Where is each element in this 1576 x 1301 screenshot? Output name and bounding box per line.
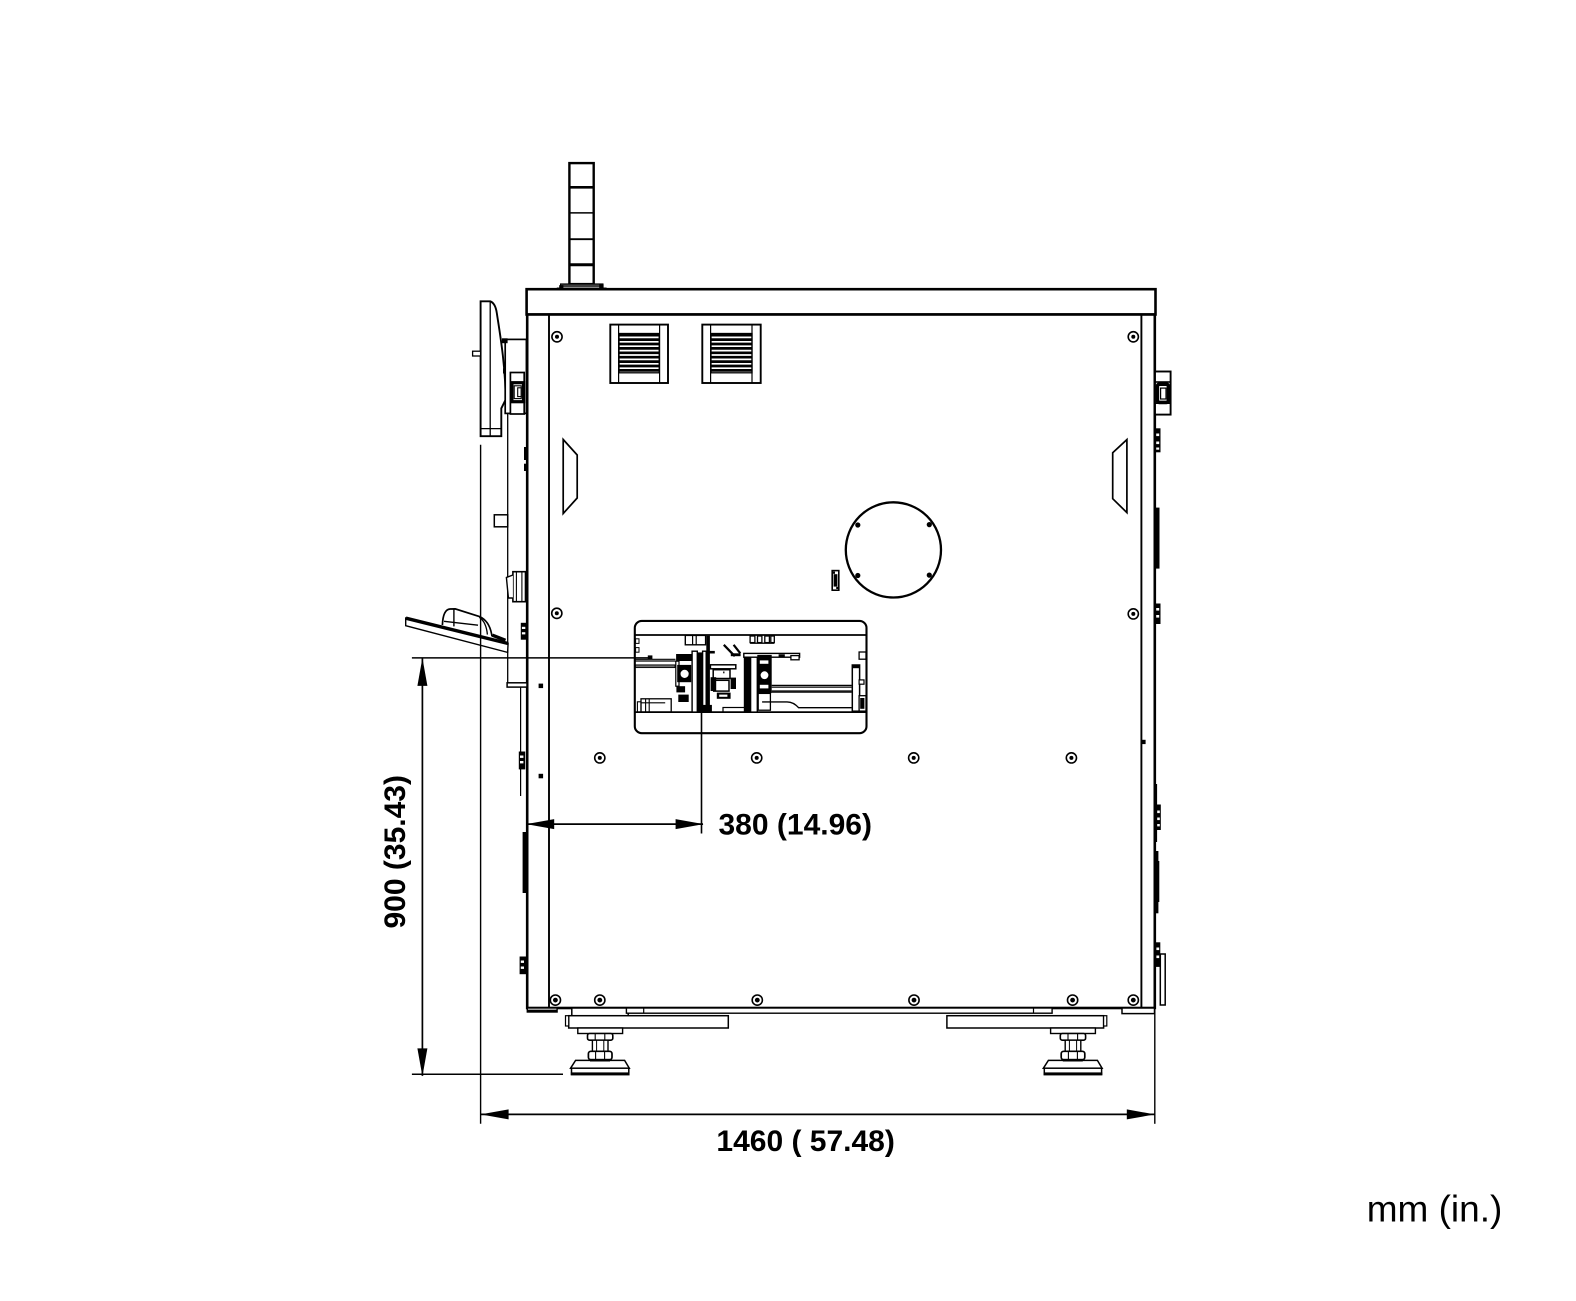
svg-text:380 (14.96): 380 (14.96) bbox=[719, 809, 872, 842]
svg-text:900 (35.43): 900 (35.43) bbox=[379, 775, 412, 928]
svg-text:mm (in.): mm (in.) bbox=[1367, 1189, 1503, 1230]
svg-text:1460 ( 57.48): 1460 ( 57.48) bbox=[716, 1125, 894, 1158]
